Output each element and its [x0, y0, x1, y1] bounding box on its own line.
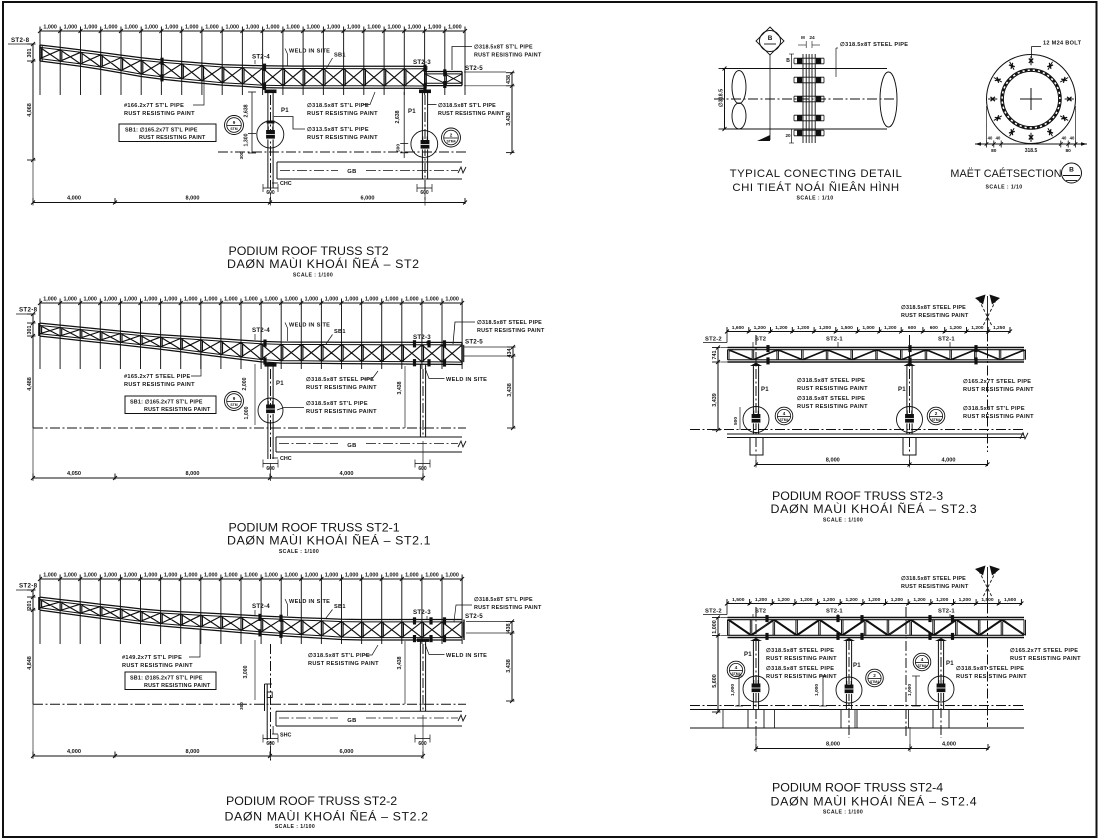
svg-text:ST2: ST2 — [755, 609, 766, 615]
svg-text:1,000: 1,000 — [244, 406, 250, 419]
svg-text:600: 600 — [930, 325, 938, 331]
svg-text:B: B — [768, 35, 773, 42]
svg-text:1,200: 1,200 — [884, 325, 897, 331]
svg-text:4: 4 — [783, 411, 786, 416]
svg-text:1,000: 1,000 — [445, 297, 459, 303]
svg-text:1,000: 1,000 — [305, 573, 319, 579]
svg-text:1,200: 1,200 — [819, 325, 832, 331]
svg-text:301: 301 — [27, 49, 33, 58]
svg-text:P1: P1 — [761, 387, 769, 393]
svg-text:40: 40 — [1070, 136, 1075, 141]
svg-text:PODIUM ROOF TRUSS ST2-4: PODIUM ROOF TRUSS ST2-4 — [772, 781, 943, 795]
svg-text:P1: P1 — [281, 108, 289, 114]
svg-text:1,000: 1,000 — [325, 573, 339, 579]
svg-text:#166.2x7T ST'L PIPE: #166.2x7T ST'L PIPE — [124, 103, 184, 109]
svg-text:8,000: 8,000 — [826, 458, 840, 464]
svg-text:RUST RESISTING PAINT: RUST RESISTING PAINT — [766, 674, 837, 680]
svg-text:438: 438 — [506, 624, 512, 633]
svg-text:1,000: 1,000 — [365, 297, 379, 303]
svg-text:∅318.5x8T ST'L PIPE: ∅318.5x8T ST'L PIPE — [308, 652, 370, 659]
svg-text:1,000: 1,000 — [730, 684, 736, 696]
svg-text:ST2-4: ST2-4 — [252, 54, 270, 61]
svg-text:CHC: CHC — [280, 456, 292, 462]
svg-text:1,000: 1,000 — [84, 25, 98, 31]
svg-text:3,438: 3,438 — [397, 656, 403, 669]
svg-text:1,000: 1,000 — [305, 297, 319, 303]
svg-text:1,200: 1,200 — [891, 597, 904, 603]
svg-text:STM4: STM4 — [917, 664, 926, 668]
svg-text:GB: GB — [347, 718, 357, 724]
svg-text:RUST RESISTING PAINT: RUST RESISTING PAINT — [901, 584, 969, 590]
svg-text:5,600: 5,600 — [712, 674, 718, 688]
svg-text:300: 300 — [239, 702, 244, 710]
svg-text:∅318.5x8T STEEL PIPE: ∅318.5x8T STEEL PIPE — [306, 376, 374, 383]
svg-text:1,000: 1,000 — [165, 25, 179, 31]
svg-text:80: 80 — [991, 148, 997, 154]
svg-text:∅318.5: ∅318.5 — [719, 89, 725, 107]
svg-text:SB1: SB1 — [334, 604, 346, 610]
svg-text:1,200: 1,200 — [800, 597, 813, 603]
svg-text:RUST RESISTING PAINT: RUST RESISTING PAINT — [1010, 656, 1081, 662]
svg-text:RUST RESISTING PAINT: RUST RESISTING PAINT — [766, 656, 837, 662]
svg-text:1,000: 1,000 — [264, 573, 278, 579]
svg-text:1,000: 1,000 — [83, 297, 97, 303]
svg-text:RUST RESISTING PAINT: RUST RESISTING PAINT — [308, 661, 379, 667]
svg-text:WELD IN SITE: WELD IN SITE — [289, 49, 330, 55]
svg-text:ST2-1: ST2-1 — [826, 337, 843, 343]
svg-text:SCALE : 1/10: SCALE : 1/10 — [796, 196, 833, 202]
svg-text:∅318.5x8T ST'L PIPE: ∅318.5x8T ST'L PIPE — [307, 102, 369, 109]
svg-text:3,439: 3,439 — [712, 393, 718, 407]
svg-text:RUST RESISTING PAINT: RUST RESISTING PAINT — [474, 605, 542, 611]
svg-text:CHI TIEÁT NOÁI ÑIEÂN HÌNH: CHI TIEÁT NOÁI ÑIEÂN HÌNH — [732, 181, 899, 194]
svg-text:∅318.5x8T ST'L PIPE: ∅318.5x8T ST'L PIPE — [474, 597, 533, 603]
svg-text:1,000: 1,000 — [428, 25, 442, 31]
svg-text:1,200: 1,200 — [913, 597, 926, 603]
svg-text:∅318.5x8T STEEL PIPE: ∅318.5x8T STEEL PIPE — [477, 320, 542, 326]
svg-text:RUST RESISTING PAINT: RUST RESISTING PAINT — [797, 404, 868, 410]
svg-text:4,050: 4,050 — [67, 471, 81, 477]
svg-text:1,000: 1,000 — [325, 297, 339, 303]
svg-text:DAØN MAÙI KHOÁI ÑEÁ – ST2.1: DAØN MAÙI KHOÁI ÑEÁ – ST2.1 — [227, 533, 431, 548]
svg-text:600: 600 — [418, 741, 427, 747]
svg-text:1,200: 1,200 — [959, 597, 972, 603]
svg-text:WELD IN SITE: WELD IN SITE — [446, 653, 487, 659]
svg-text:WELD IN SITE: WELD IN SITE — [289, 323, 330, 329]
svg-text:SCALE : 1/100: SCALE : 1/100 — [823, 810, 863, 816]
svg-text:3,438: 3,438 — [506, 659, 512, 673]
svg-text:1,000: 1,000 — [164, 573, 178, 579]
svg-text:8,000: 8,000 — [186, 471, 200, 477]
svg-text:ST2-4: ST2-4 — [252, 327, 270, 334]
svg-text:ST2-3: ST2-3 — [413, 59, 431, 66]
svg-text:1,000: 1,000 — [347, 25, 361, 31]
svg-text:GB: GB — [347, 169, 357, 175]
svg-text:1,000: 1,000 — [184, 573, 198, 579]
svg-text:1,000: 1,000 — [244, 573, 258, 579]
svg-text:GB: GB — [347, 443, 357, 449]
svg-text:1,000: 1,000 — [365, 573, 379, 579]
svg-text:1,500: 1,500 — [732, 597, 745, 603]
svg-text:RUST RESISTING PAINT: RUST RESISTING PAINT — [124, 111, 195, 117]
svg-text:RUST RESISTING PAINT: RUST RESISTING PAINT — [307, 135, 378, 141]
svg-text:ST2-1: ST2-1 — [826, 609, 843, 615]
svg-text:RUST RESISTING PAINT: RUST RESISTING PAINT — [144, 683, 211, 689]
svg-text:1,200: 1,200 — [971, 325, 984, 331]
svg-text:6,000: 6,000 — [340, 749, 354, 755]
svg-text:1,000: 1,000 — [284, 573, 298, 579]
svg-text:1,000: 1,000 — [164, 297, 178, 303]
svg-text:1,000: 1,000 — [43, 573, 57, 579]
svg-text:RUST RESISTING PAINT: RUST RESISTING PAINT — [122, 663, 193, 669]
svg-text:1,000: 1,000 — [712, 620, 718, 634]
svg-text:1,000: 1,000 — [345, 573, 359, 579]
svg-text:1,000: 1,000 — [224, 297, 238, 303]
svg-text:TYPICAL CONECTING DETAIL: TYPICAL CONECTING DETAIL — [730, 168, 903, 180]
svg-text:3,438: 3,438 — [507, 383, 513, 397]
svg-text:741: 741 — [712, 351, 718, 360]
svg-text:1,000: 1,000 — [425, 573, 439, 579]
svg-text:1,000: 1,000 — [204, 573, 218, 579]
svg-text:1,000: 1,000 — [286, 25, 300, 31]
svg-text:1,000: 1,000 — [387, 25, 401, 31]
svg-text:1,500: 1,500 — [981, 597, 994, 603]
svg-text:1,000: 1,000 — [104, 573, 118, 579]
svg-text:4,000: 4,000 — [942, 742, 956, 748]
svg-text:2: 2 — [450, 132, 453, 137]
svg-text:3,000: 3,000 — [243, 665, 249, 678]
svg-text:2,638: 2,638 — [395, 110, 401, 123]
svg-text:PODIUM ROOF TRUSS ST2-3: PODIUM ROOF TRUSS ST2-3 — [772, 489, 943, 503]
svg-text:∅318.5x8T STEEL PIPE: ∅318.5x8T STEEL PIPE — [766, 665, 834, 672]
svg-text:DAØN MAÙI KHOÁI ÑEÁ – ST2.4: DAØN MAÙI KHOÁI ÑEÁ – ST2.4 — [771, 794, 978, 809]
svg-text:4,000: 4,000 — [67, 196, 81, 202]
svg-text:DAØN MAÙI KHOÁI ÑEÁ – ST2.2: DAØN MAÙI KHOÁI ÑEÁ – ST2.2 — [225, 809, 429, 824]
svg-text:1,000: 1,000 — [244, 297, 258, 303]
svg-text:500: 500 — [733, 417, 739, 425]
svg-text:1,200: 1,200 — [775, 325, 788, 331]
svg-text:STM4: STM4 — [779, 418, 788, 422]
svg-text:RUST RESISTING PAINT: RUST RESISTING PAINT — [438, 111, 505, 117]
svg-text:SCALE : 1/10: SCALE : 1/10 — [985, 185, 1022, 191]
svg-text:1,000: 1,000 — [145, 25, 159, 31]
svg-text:4,488: 4,488 — [27, 377, 33, 391]
svg-text:B: B — [1069, 167, 1074, 174]
svg-text:ST2-3: ST2-3 — [413, 609, 431, 616]
svg-text:4: 4 — [921, 657, 924, 662]
svg-text:ST2-2: ST2-2 — [705, 609, 722, 615]
svg-text:1,000: 1,000 — [205, 25, 219, 31]
svg-text:3,438: 3,438 — [506, 112, 512, 126]
svg-text:STM4: STM4 — [870, 680, 879, 684]
svg-text:RUST RESISTING PAINT: RUST RESISTING PAINT — [474, 53, 542, 59]
svg-text:1,000: 1,000 — [63, 573, 77, 579]
svg-text:1,000: 1,000 — [224, 573, 238, 579]
svg-text:∅318.5x8T STEEL PIPE: ∅318.5x8T STEEL PIPE — [956, 665, 1024, 672]
svg-text:#149.2x7T ST'L PIPE: #149.2x7T ST'L PIPE — [122, 655, 182, 661]
svg-text:4,068: 4,068 — [27, 103, 33, 117]
svg-text:1,000: 1,000 — [862, 325, 875, 331]
svg-text:1,000: 1,000 — [64, 25, 78, 31]
svg-text:STM4: STM4 — [731, 672, 740, 676]
svg-text:M: M — [801, 35, 805, 40]
svg-text:300: 300 — [239, 151, 244, 159]
svg-text:600: 600 — [418, 466, 427, 472]
svg-text:RUST RESISTING PAINT: RUST RESISTING PAINT — [144, 407, 211, 413]
svg-text:RUST RESISTING PAINT: RUST RESISTING PAINT — [124, 382, 195, 388]
svg-text:1,000: 1,000 — [327, 25, 341, 31]
svg-text:4,000: 4,000 — [942, 458, 956, 464]
svg-text:RUST RESISTING PAINT: RUST RESISTING PAINT — [306, 385, 377, 391]
svg-text:ST2-3: ST2-3 — [413, 334, 431, 341]
svg-text:40: 40 — [1062, 136, 1067, 141]
svg-text:1,000: 1,000 — [907, 684, 913, 696]
svg-text:∅318.5x8T STEEL PIPE: ∅318.5x8T STEEL PIPE — [901, 305, 966, 311]
svg-text:∅318.5x8T STEEL PIPE: ∅318.5x8T STEEL PIPE — [766, 647, 834, 654]
svg-text:∅318.5x8T STEEL PIPE: ∅318.5x8T STEEL PIPE — [797, 377, 865, 384]
svg-text:600: 600 — [420, 190, 429, 196]
svg-text:24: 24 — [809, 35, 815, 41]
svg-text:1,000: 1,000 — [367, 25, 381, 31]
svg-text:1,000: 1,000 — [104, 297, 118, 303]
svg-text:301: 301 — [27, 326, 33, 335]
svg-text:318.5: 318.5 — [1025, 148, 1038, 154]
svg-text:1,000: 1,000 — [124, 297, 138, 303]
svg-text:WELD IN SITE: WELD IN SITE — [289, 599, 330, 605]
svg-text:1,000: 1,000 — [185, 25, 199, 31]
svg-text:STM4: STM4 — [446, 140, 455, 144]
svg-text:1,000: 1,000 — [144, 573, 158, 579]
svg-text:1,000: 1,000 — [448, 25, 462, 31]
svg-text:∅318.5x8T STEEL PIPE: ∅318.5x8T STEEL PIPE — [901, 576, 966, 582]
svg-text:1,200: 1,200 — [755, 597, 768, 603]
svg-text:1,200: 1,200 — [845, 597, 858, 603]
svg-text:12 M24 BOLT: 12 M24 BOLT — [1043, 41, 1082, 47]
svg-text:SB1: ∅165.2x7T ST'L PIPE: SB1: ∅165.2x7T ST'L PIPE — [125, 128, 198, 134]
svg-text:RUST RESISTING PAINT: RUST RESISTING PAINT — [307, 111, 378, 117]
svg-text:8,000: 8,000 — [186, 196, 200, 202]
svg-text:∅165.2x7T STEEL PIPE: ∅165.2x7T STEEL PIPE — [963, 378, 1031, 385]
svg-text:WELD IN SITE: WELD IN SITE — [446, 377, 487, 383]
svg-text:1,000: 1,000 — [204, 297, 218, 303]
svg-text:1,000: 1,000 — [408, 25, 422, 31]
svg-text:B: B — [786, 58, 790, 64]
svg-text:20: 20 — [785, 133, 791, 138]
svg-text:1,000: 1,000 — [184, 297, 198, 303]
svg-text:∅318.5x8T ST'L PIPE: ∅318.5x8T ST'L PIPE — [438, 103, 496, 109]
svg-text:500: 500 — [396, 144, 402, 152]
svg-text:1,200: 1,200 — [823, 597, 836, 603]
svg-text:RUST RESISTING PAINT: RUST RESISTING PAINT — [901, 313, 969, 319]
svg-text:4,000: 4,000 — [67, 749, 81, 755]
svg-text:STM4: STM4 — [931, 418, 940, 422]
svg-text:ST2-1: ST2-1 — [938, 609, 955, 615]
svg-text:1,000: 1,000 — [405, 573, 419, 579]
svg-text:80: 80 — [1066, 148, 1072, 154]
svg-text:1,600: 1,600 — [732, 325, 745, 331]
svg-text:1,000: 1,000 — [264, 297, 278, 303]
svg-text:1,000: 1,000 — [266, 25, 280, 31]
svg-text:P1: P1 — [898, 387, 906, 393]
svg-text:1,000: 1,000 — [385, 297, 399, 303]
svg-text:3,438: 3,438 — [397, 381, 403, 394]
svg-text:DAØN MAÙI KHOÁI ÑEÁ – ST2: DAØN MAÙI KHOÁI ÑEÁ – ST2 — [227, 256, 420, 271]
svg-text:RUST RESISTING PAINT: RUST RESISTING PAINT — [306, 409, 377, 415]
svg-text:40: 40 — [988, 136, 993, 141]
svg-text:8,000: 8,000 — [186, 749, 200, 755]
svg-text:438: 438 — [506, 75, 512, 84]
svg-text:ST2-4: ST2-4 — [252, 603, 270, 610]
svg-text:∅318.5x8T STEEL PIPE: ∅318.5x8T STEEL PIPE — [797, 395, 865, 402]
svg-text:1,000: 1,000 — [83, 573, 97, 579]
svg-text:1,000: 1,000 — [345, 297, 359, 303]
svg-text:ST2-5: ST2-5 — [465, 65, 483, 72]
svg-text:SCALE : 1/100: SCALE : 1/100 — [823, 517, 863, 523]
svg-text:1,000: 1,000 — [425, 297, 439, 303]
svg-text:1,000: 1,000 — [43, 297, 57, 303]
svg-text:4,848: 4,848 — [27, 656, 33, 670]
svg-text:600: 600 — [908, 325, 916, 331]
svg-text:#165.2x7T STEEL PIPE: #165.2x7T STEEL PIPE — [124, 374, 191, 380]
svg-text:1,000: 1,000 — [124, 25, 138, 31]
svg-text:1,000: 1,000 — [306, 25, 320, 31]
svg-text:PODIUM ROOF TRUSS ST2: PODIUM ROOF TRUSS ST2 — [229, 244, 389, 258]
svg-text:2: 2 — [935, 411, 938, 416]
svg-text:1,500: 1,500 — [1004, 597, 1017, 603]
svg-text:1,000: 1,000 — [43, 25, 57, 31]
svg-text:ST2-8: ST2-8 — [11, 37, 30, 44]
svg-text:P1: P1 — [744, 652, 752, 658]
svg-text:9: 9 — [233, 120, 236, 125]
svg-text:P1: P1 — [853, 663, 861, 669]
svg-text:MAËT CAÉTSECTION: MAËT CAÉTSECTION — [950, 167, 1061, 180]
svg-text:1,000: 1,000 — [226, 25, 240, 31]
svg-text:ST2-5: ST2-5 — [465, 339, 483, 346]
svg-text:ST2-5: ST2-5 — [465, 613, 483, 620]
svg-text:∅318.5x8T ST'L PIPE: ∅318.5x8T ST'L PIPE — [474, 45, 533, 51]
svg-text:CHC: CHC — [280, 181, 292, 187]
svg-text:RUST RESISTING PAINT: RUST RESISTING PAINT — [797, 386, 868, 392]
svg-text:1,000: 1,000 — [814, 684, 820, 696]
svg-text:1,000: 1,000 — [405, 297, 419, 303]
svg-text:1,200: 1,200 — [777, 597, 790, 603]
svg-text:1,200: 1,200 — [754, 325, 767, 331]
svg-text:1,200: 1,200 — [936, 597, 949, 603]
svg-text:ST2-2: ST2-2 — [705, 337, 722, 343]
svg-text:201: 201 — [27, 601, 33, 610]
svg-text:SHC: SHC — [280, 733, 291, 739]
svg-text:∅313.5x8T ST'L PIPE: ∅313.5x8T ST'L PIPE — [307, 126, 369, 133]
svg-text:2,000: 2,000 — [242, 377, 248, 390]
svg-text:PODIUM ROOF TRUSS ST2-2: PODIUM ROOF TRUSS ST2-2 — [226, 794, 397, 808]
svg-text:2,638: 2,638 — [244, 104, 250, 117]
svg-text:P1: P1 — [408, 109, 416, 115]
svg-text:RUST RESISTING PAINT: RUST RESISTING PAINT — [956, 674, 1027, 680]
svg-text:1,000: 1,000 — [63, 297, 77, 303]
svg-text:ST2-1: ST2-1 — [938, 337, 955, 343]
svg-text:1,200: 1,200 — [949, 325, 962, 331]
svg-text:8,000: 8,000 — [826, 742, 840, 748]
svg-text:1,000: 1,000 — [445, 573, 459, 579]
svg-text:1,000: 1,000 — [144, 297, 158, 303]
svg-text:1,500: 1,500 — [841, 325, 854, 331]
svg-text:SCALE : 1/100: SCALE : 1/100 — [275, 824, 315, 830]
svg-text:∅318.5x8T ST'L PIPE: ∅318.5x8T ST'L PIPE — [306, 400, 368, 407]
svg-text:SB1: ∅165.2x7T ST'L PIPE: SB1: ∅165.2x7T ST'L PIPE — [130, 400, 203, 406]
svg-text:∅165.2x7T STEEL PIPE: ∅165.2x7T STEEL PIPE — [1010, 647, 1078, 654]
svg-text:1,000: 1,000 — [124, 573, 138, 579]
svg-text:SCALE : 1/100: SCALE : 1/100 — [293, 273, 333, 279]
svg-text:1,000: 1,000 — [246, 25, 260, 31]
svg-text:1,000: 1,000 — [284, 297, 298, 303]
svg-text:PODIUM ROOF TRUSS ST2-1: PODIUM ROOF TRUSS ST2-1 — [229, 521, 400, 535]
svg-text:P1: P1 — [946, 661, 954, 667]
svg-text:1,000: 1,000 — [385, 573, 399, 579]
svg-text:1,200: 1,200 — [868, 597, 881, 603]
svg-text:SB1: SB1 — [334, 53, 346, 59]
svg-text:1,000: 1,000 — [104, 25, 118, 31]
svg-text:SB1: SB1 — [334, 329, 346, 335]
svg-text:P1: P1 — [276, 381, 284, 387]
svg-text:SCALE : 1/100: SCALE : 1/100 — [279, 549, 319, 555]
svg-text:4,000: 4,000 — [340, 471, 354, 477]
svg-text:RUST RESISTING PAINT: RUST RESISTING PAINT — [963, 387, 1034, 393]
svg-text:RUST RESISTING PAINT: RUST RESISTING PAINT — [963, 414, 1034, 420]
svg-text:RUST RESISTING PAINT: RUST RESISTING PAINT — [477, 328, 545, 334]
svg-text:2: 2 — [873, 673, 876, 678]
svg-text:1,300: 1,300 — [244, 133, 250, 146]
svg-text:∅318.5x8T ST'L PIPE: ∅318.5x8T ST'L PIPE — [963, 405, 1025, 412]
svg-text:6,000: 6,000 — [361, 196, 375, 202]
svg-text:40: 40 — [996, 136, 1001, 141]
svg-text:RUST RESISTING PAINT: RUST RESISTING PAINT — [139, 135, 206, 141]
svg-text:DAØN MAÙI KHOÁI ÑEÁ – ST2.3: DAØN MAÙI KHOÁI ÑEÁ – ST2.3 — [771, 501, 978, 516]
svg-text:STM: STM — [230, 403, 237, 407]
svg-text:4: 4 — [735, 665, 738, 670]
svg-text:SB1: ∅185.2x7T ST'L PIPE: SB1: ∅185.2x7T ST'L PIPE — [130, 676, 203, 682]
svg-text:STM: STM — [230, 127, 237, 131]
svg-text:1,250: 1,250 — [993, 325, 1006, 331]
svg-text:∅318.5x8T STEEL PIPE: ∅318.5x8T STEEL PIPE — [840, 41, 908, 48]
svg-text:ST2: ST2 — [755, 337, 766, 343]
svg-text:9: 9 — [233, 396, 236, 401]
svg-text:1,200: 1,200 — [797, 325, 810, 331]
